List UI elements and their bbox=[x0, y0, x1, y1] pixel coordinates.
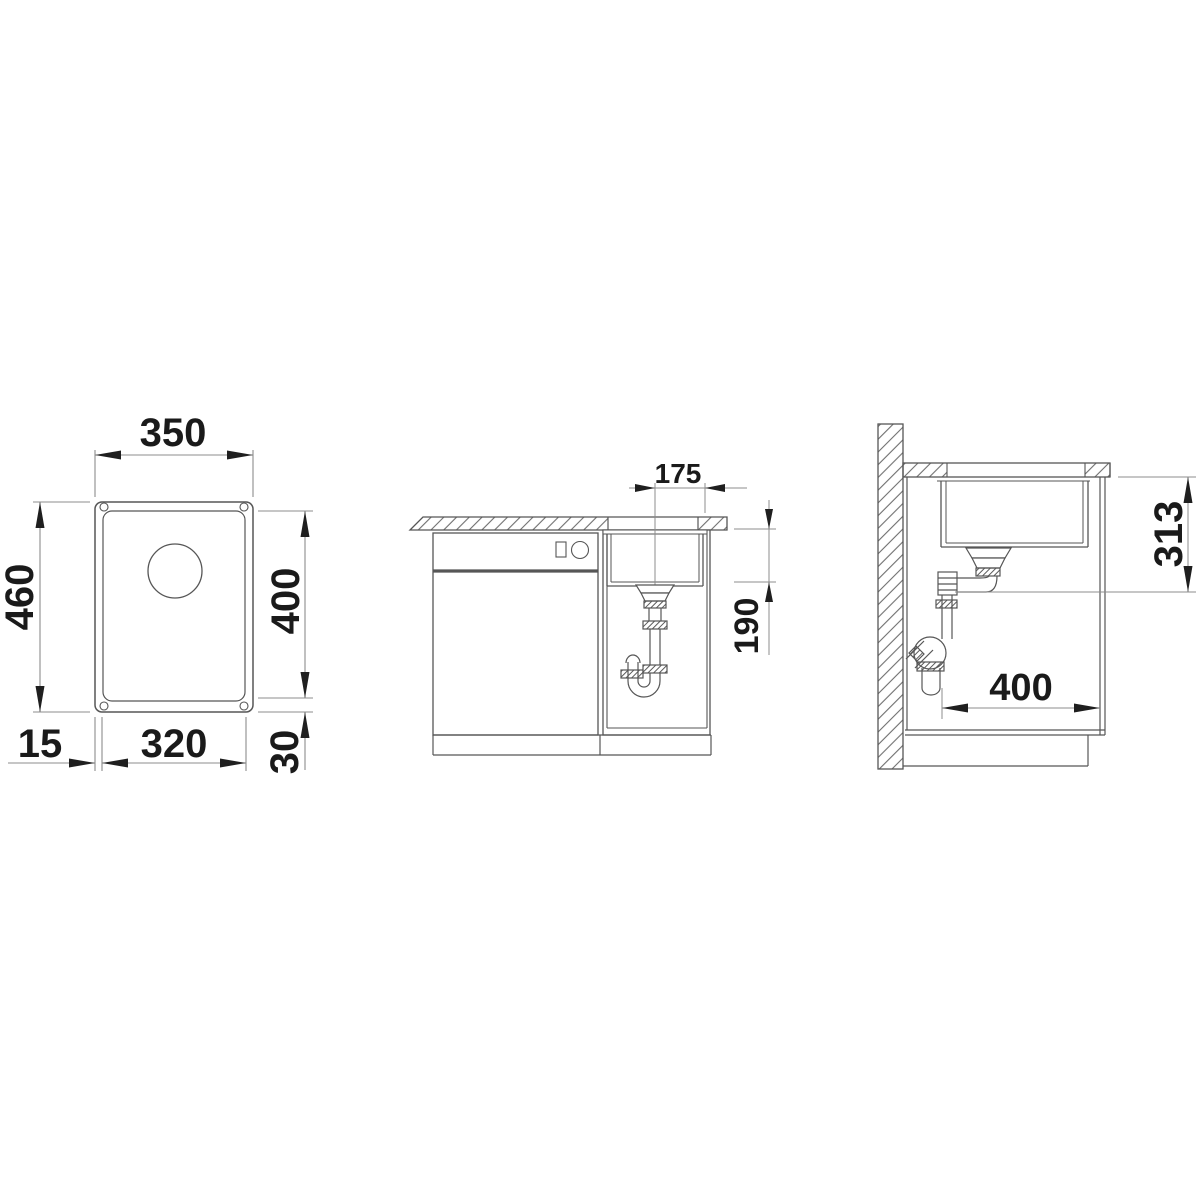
dim-label-460: 460 bbox=[0, 564, 42, 631]
dimension-bowl-depth: 190 bbox=[728, 500, 776, 655]
arrow-right bbox=[635, 484, 655, 492]
arrow-right bbox=[220, 759, 246, 768]
dimension-drain-offset: 175 bbox=[629, 458, 747, 513]
side-view: 313 400 bbox=[878, 424, 1196, 769]
plinth-front bbox=[433, 735, 711, 755]
wall bbox=[878, 424, 903, 769]
dimension-overall-depth: 460 bbox=[0, 502, 90, 712]
trap-bottom-cap bbox=[922, 688, 940, 695]
arrow-up bbox=[36, 502, 45, 528]
drain-nut bbox=[976, 568, 1000, 576]
arrow-left bbox=[102, 759, 128, 768]
drain-hole bbox=[148, 544, 202, 598]
dimension-side-rim: 15 bbox=[8, 717, 102, 771]
dim-label-313: 313 bbox=[1147, 501, 1191, 568]
dimension-cabinet-depth: 400 bbox=[942, 667, 1100, 719]
sink-bowl-side bbox=[937, 481, 1090, 547]
dim-label-15: 15 bbox=[18, 722, 63, 766]
dim-label-175: 175 bbox=[655, 458, 702, 489]
arrow-down bbox=[301, 672, 310, 698]
dim-label-30: 30 bbox=[263, 730, 307, 775]
dim-label-190: 190 bbox=[728, 598, 766, 655]
sink-technical-drawing: 350 460 400 30 bbox=[0, 0, 1200, 1200]
dim-label-350: 350 bbox=[140, 411, 207, 455]
dim-label-400-side: 400 bbox=[989, 667, 1052, 709]
countertop-side bbox=[903, 463, 1110, 477]
technical-drawing-canvas: 350 460 400 30 bbox=[0, 0, 1200, 1200]
dimension-cutout-length: 400 bbox=[258, 511, 313, 698]
dimension-bowl-width: 320 bbox=[102, 717, 246, 771]
countertop-front bbox=[410, 517, 727, 530]
arrow-right bbox=[227, 451, 253, 460]
top-view: 350 460 400 30 bbox=[0, 411, 313, 774]
coupling-nut bbox=[643, 665, 667, 673]
arrow-down bbox=[765, 509, 773, 529]
arrow-left bbox=[942, 704, 968, 713]
arrow-left bbox=[95, 451, 121, 460]
arrow-down bbox=[1184, 566, 1193, 592]
dimension-front-rim: 30 bbox=[258, 712, 313, 774]
drain-nut bbox=[644, 601, 666, 608]
coupling-nut bbox=[621, 670, 643, 678]
front-view: 175 190 bbox=[410, 458, 776, 755]
arrow-left bbox=[705, 484, 725, 492]
arrow-up bbox=[765, 582, 773, 602]
sink-cabinet-side bbox=[903, 463, 1110, 766]
arrow-right bbox=[1074, 704, 1100, 713]
dimension-overall-width: 350 bbox=[95, 411, 253, 497]
sink-cabinet-front bbox=[603, 530, 710, 735]
dim-label-320: 320 bbox=[141, 722, 208, 766]
coupling-nut bbox=[936, 600, 957, 608]
dishwasher-cabinet bbox=[433, 533, 598, 735]
wall-outlet-nut bbox=[909, 646, 924, 661]
coupling-nut bbox=[643, 621, 667, 629]
arrow-up bbox=[1184, 477, 1193, 503]
arrow-up bbox=[301, 511, 310, 537]
sink-outer-outline bbox=[95, 502, 253, 712]
arrow-right bbox=[69, 759, 95, 768]
coupling-nut bbox=[917, 662, 944, 671]
arrow-down bbox=[36, 686, 45, 712]
dim-label-400: 400 bbox=[264, 568, 308, 635]
